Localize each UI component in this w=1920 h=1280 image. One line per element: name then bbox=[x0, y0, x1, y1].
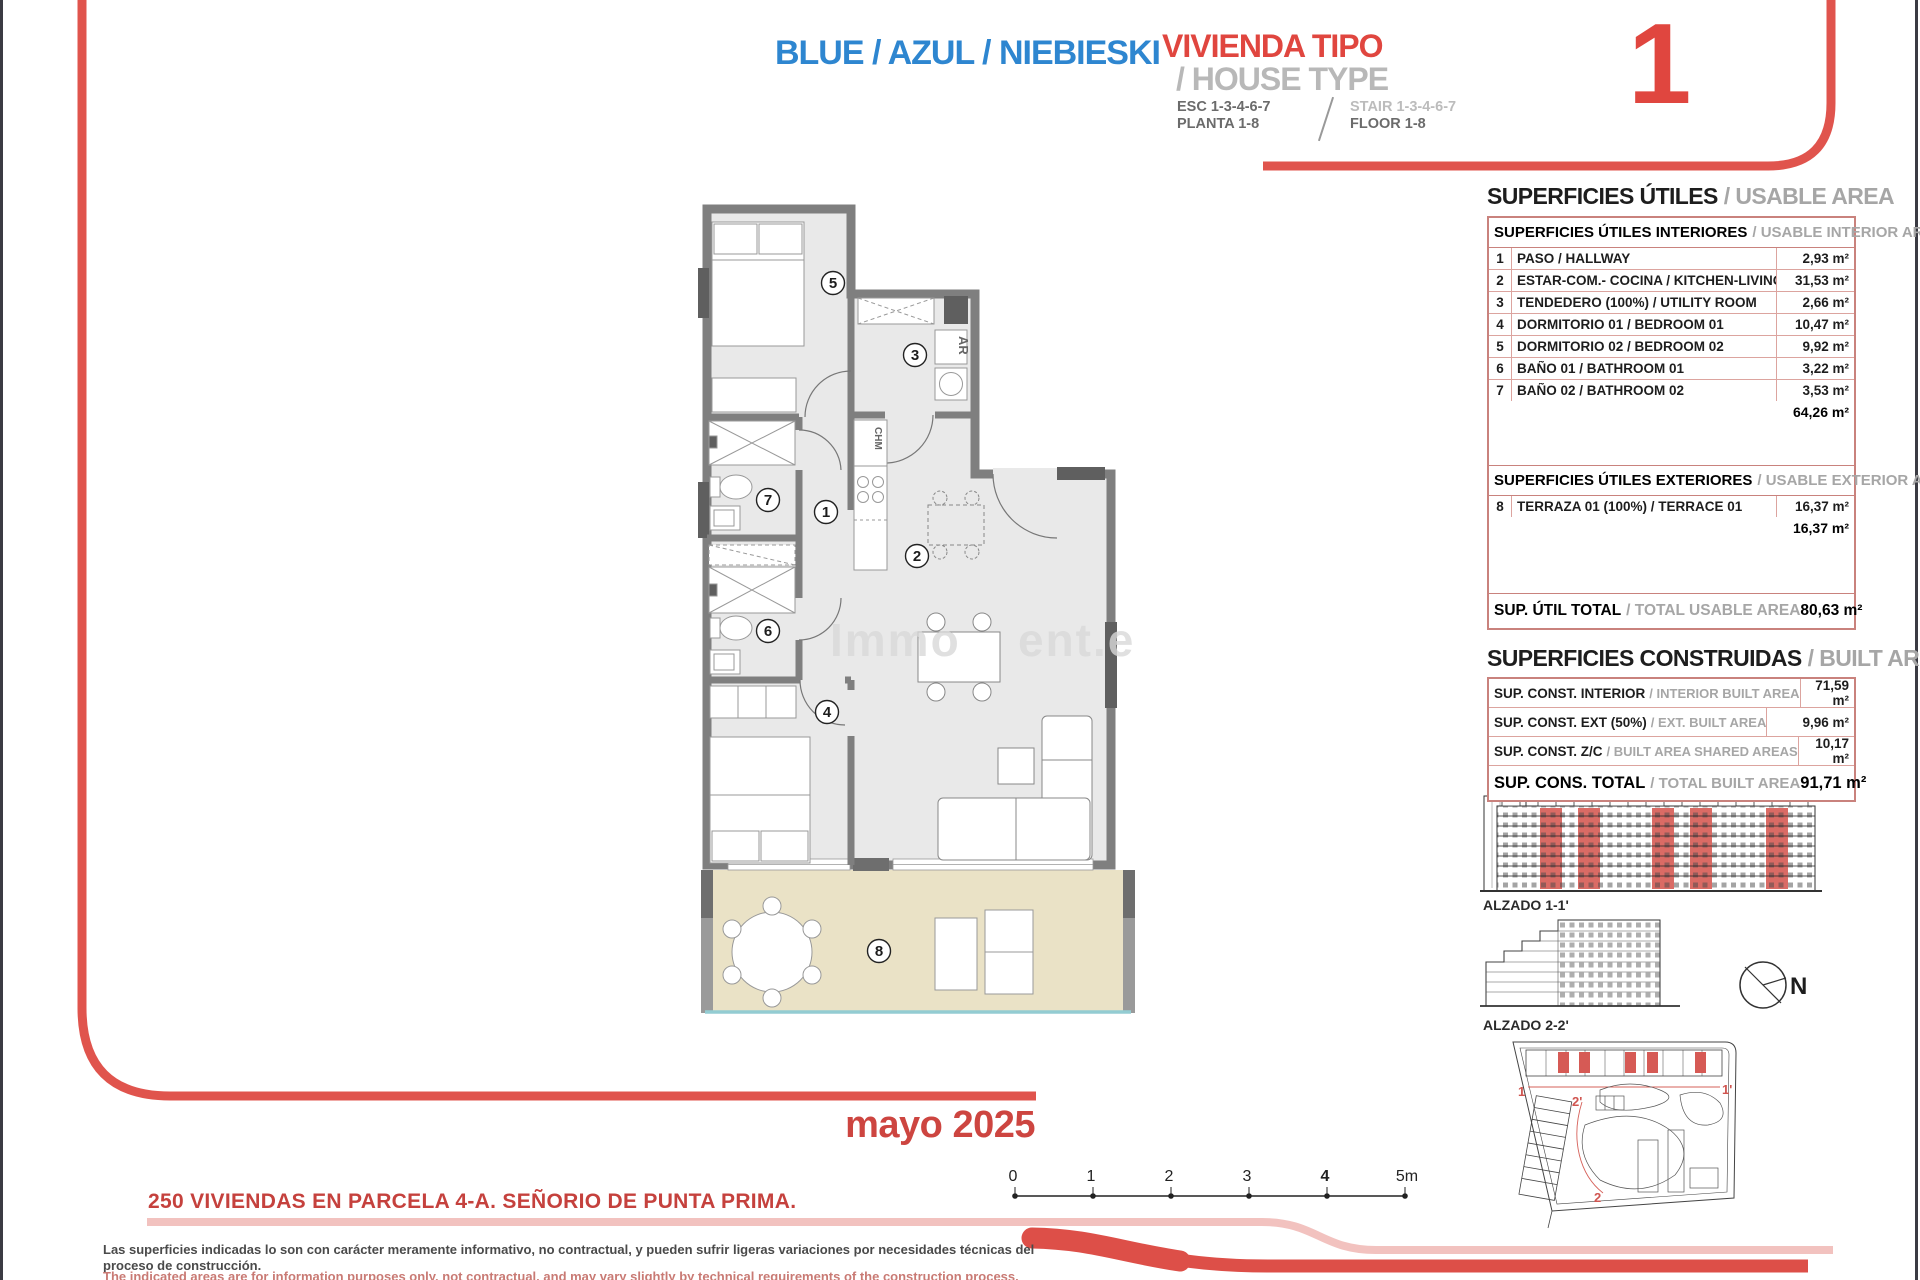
elevation-2-drawing: ALZADO 2-2' bbox=[1480, 920, 1680, 1033]
disclaimer-en: The indicated areas are for information … bbox=[103, 1269, 1303, 1280]
date-label: mayo 2025 bbox=[835, 1104, 1035, 1147]
row-value: 71,59 m² bbox=[1800, 679, 1855, 707]
table-row: 2ESTAR-COM.- COCINA / KITCHEN-LIVING31,5… bbox=[1489, 270, 1854, 292]
floor-plan-drawing: AR CHM 1 2 3 4 5 6 7 8 bbox=[698, 209, 1135, 1013]
elevation-1-label: ALZADO 1-1' bbox=[1483, 897, 1569, 913]
table-row: 6BAÑO 01 / BATHROOM 013,22 m² bbox=[1489, 358, 1854, 380]
interior-header-es: SUPERFICIES ÚTILES INTERIORES bbox=[1494, 224, 1747, 241]
row-num: 3 bbox=[1489, 292, 1512, 313]
table-row: SUP. CONST. Z/C/ BUILT AREA SHARED AREAS… bbox=[1489, 737, 1854, 766]
row-value: 10,47 m² bbox=[1776, 314, 1854, 335]
built-area-table: SUP. CONST. INTERIOR/ INTERIOR BUILT ARE… bbox=[1487, 677, 1856, 802]
table-spacer bbox=[1489, 539, 1854, 593]
row-num: 5 bbox=[1489, 336, 1512, 357]
row-value: 9,92 m² bbox=[1776, 336, 1854, 357]
house-type-number: 1 bbox=[1628, 8, 1691, 122]
row-label: TENDEDERO (100%) / UTILITY ROOM bbox=[1512, 295, 1776, 310]
room-label-8: 8 bbox=[875, 943, 883, 960]
usable-area-table: SUPERFICIES ÚTILES INTERIORES/ USABLE IN… bbox=[1487, 216, 1856, 630]
exterior-header-es: SUPERFICIES ÚTILES EXTERIORES bbox=[1494, 472, 1752, 489]
exterior-area-header: SUPERFICIES ÚTILES EXTERIORES/ USABLE EX… bbox=[1489, 465, 1854, 496]
row-num: 7 bbox=[1489, 380, 1512, 401]
exterior-header-en: / USABLE EXTERIOR AREA bbox=[1757, 472, 1920, 489]
usable-area-title: SUPERFICIES ÚTILES/ USABLE AREA bbox=[1487, 183, 1894, 210]
row-label-en: / EXT. BUILT AREA bbox=[1651, 715, 1767, 730]
row-label-es: SUP. CONST. Z/C bbox=[1494, 744, 1603, 759]
site-plan-markers: 1 1' 2' 2 bbox=[1518, 1082, 1732, 1205]
room-label-6: 6 bbox=[764, 623, 772, 640]
table-row: SUP. CONST. EXT (50%)/ EXT. BUILT AREA9,… bbox=[1489, 708, 1854, 737]
row-label: PASO / HALLWAY bbox=[1512, 251, 1776, 266]
built-area-title: SUPERFICIES CONSTRUIDAS/ BUILT AREA bbox=[1487, 645, 1920, 672]
marker-1-prime: 1' bbox=[1722, 1082, 1732, 1097]
marker-1: 1 bbox=[1518, 1084, 1525, 1099]
room-label-5: 5 bbox=[829, 275, 837, 292]
built-total-row: SUP. CONS. TOTAL/ TOTAL BUILT AREA 91,71… bbox=[1489, 766, 1854, 800]
row-label-es: SUP. CONST. INTERIOR bbox=[1494, 686, 1645, 701]
row-value: 16,37 m² bbox=[1776, 496, 1854, 517]
scale-tick-1: 1 bbox=[1087, 1168, 1096, 1185]
row-value: 2,66 m² bbox=[1776, 292, 1854, 313]
elevation-2-label: ALZADO 2-2' bbox=[1483, 1017, 1569, 1033]
color-title: BLUE / AZUL / NIEBIESKI bbox=[740, 34, 1160, 73]
scale-tick-3: 3 bbox=[1243, 1168, 1252, 1185]
built-total-label-en: / TOTAL BUILT AREA bbox=[1650, 775, 1800, 792]
row-value: 31,53 m² bbox=[1776, 270, 1854, 291]
usable-total-row: SUP. ÚTIL TOTAL/ TOTAL USABLE AREA 80,63… bbox=[1489, 593, 1854, 628]
row-value: 2,93 m² bbox=[1776, 248, 1854, 269]
scale-tick-2: 2 bbox=[1165, 1168, 1174, 1185]
usable-total-label-es: SUP. ÚTIL TOTAL bbox=[1494, 602, 1621, 620]
room-label-1: 1 bbox=[822, 504, 830, 521]
planta-label: PLANTA 1-8 bbox=[1177, 116, 1270, 133]
interior-subtotal: 64,26 m² bbox=[1489, 401, 1854, 423]
table-row: 8TERRAZA 01 (100%) / TERRACE 0116,37 m² bbox=[1489, 496, 1854, 517]
usable-total-value: 80,63 m² bbox=[1800, 602, 1862, 620]
stair-floor-info-en: STAIR 1-3-4-6-7 FLOOR 1-8 bbox=[1350, 99, 1456, 133]
built-area-title-en: / BUILT AREA bbox=[1808, 645, 1920, 671]
usable-total-label-en: / TOTAL USABLE AREA bbox=[1626, 602, 1800, 620]
row-label: TERRAZA 01 (100%) / TERRACE 01 bbox=[1512, 499, 1776, 514]
table-row: 5DORMITORIO 02 / BEDROOM 029,92 m² bbox=[1489, 336, 1854, 358]
row-label-es: SUP. CONST. EXT (50%) bbox=[1494, 715, 1647, 730]
table-row: SUP. CONST. INTERIOR/ INTERIOR BUILT ARE… bbox=[1489, 679, 1854, 708]
built-total-value: 91,71 m² bbox=[1800, 774, 1866, 793]
row-label-en: / INTERIOR BUILT AREA bbox=[1649, 686, 1799, 701]
page-edge-right bbox=[1915, 0, 1918, 1280]
scale-tick-0: 0 bbox=[1009, 1168, 1018, 1185]
row-value: 10,17 m² bbox=[1798, 737, 1854, 765]
table-row: 1PASO / HALLWAY2,93 m² bbox=[1489, 248, 1854, 270]
built-area-title-es: SUPERFICIES CONSTRUIDAS bbox=[1487, 645, 1802, 671]
row-num: 2 bbox=[1489, 270, 1512, 291]
watermark-right: ent.e bbox=[1018, 614, 1135, 666]
watermark-left: Immo bbox=[830, 614, 961, 666]
scale-bar: 0 1 2 3 4 5m bbox=[1009, 1168, 1419, 1199]
table-row: 7BAÑO 02 / BATHROOM 023,53 m² bbox=[1489, 380, 1854, 401]
table-row: 3TENDEDERO (100%) / UTILITY ROOM2,66 m² bbox=[1489, 292, 1854, 314]
row-value: 9,96 m² bbox=[1766, 708, 1854, 736]
highlighted-units-siteplan bbox=[1558, 1052, 1706, 1073]
appliance-label-chm: CHM bbox=[872, 427, 883, 450]
floor-plan-sheet: AR CHM 1 2 3 4 5 6 7 8 bbox=[0, 0, 1920, 1280]
scale-tick-5: 5m bbox=[1396, 1168, 1418, 1185]
usable-area-title-en: / USABLE AREA bbox=[1724, 183, 1894, 209]
room-label-4: 4 bbox=[823, 704, 832, 721]
table-row: 4DORMITORIO 01 / BEDROOM 0110,47 m² bbox=[1489, 314, 1854, 336]
built-total-label-es: SUP. CONS. TOTAL bbox=[1494, 774, 1645, 793]
scale-tick-4: 4 bbox=[1321, 1168, 1330, 1185]
row-label: DORMITORIO 01 / BEDROOM 01 bbox=[1512, 317, 1776, 332]
row-label: DORMITORIO 02 / BEDROOM 02 bbox=[1512, 339, 1776, 354]
row-label: BAÑO 02 / BATHROOM 02 bbox=[1512, 383, 1776, 398]
row-num: 1 bbox=[1489, 248, 1512, 269]
row-num: 8 bbox=[1489, 496, 1512, 517]
floor-label: FLOOR 1-8 bbox=[1350, 116, 1456, 133]
esc-label: ESC 1-3-4-6-7 bbox=[1177, 99, 1270, 116]
stair-label: STAIR 1-3-4-6-7 bbox=[1350, 99, 1456, 116]
exterior-subtotal: 16,37 m² bbox=[1489, 517, 1854, 539]
site-plan-drawing: 1 1' 2' 2 bbox=[1513, 1042, 1736, 1228]
row-num: 6 bbox=[1489, 358, 1512, 379]
interior-area-header: SUPERFICIES ÚTILES INTERIORES/ USABLE IN… bbox=[1489, 218, 1854, 248]
compass: N bbox=[1740, 962, 1807, 1008]
house-type-title-es: VIVIENDA TIPO bbox=[1162, 28, 1383, 65]
elevation-1-drawing: ALZADO 1-1' bbox=[1480, 796, 1822, 913]
row-label-en: / BUILT AREA SHARED AREAS bbox=[1607, 744, 1798, 759]
room-label-3: 3 bbox=[911, 347, 919, 364]
marker-2-prime: 2' bbox=[1572, 1094, 1582, 1109]
usable-area-title-es: SUPERFICIES ÚTILES bbox=[1487, 183, 1718, 209]
row-num: 4 bbox=[1489, 314, 1512, 335]
compass-north-label: N bbox=[1790, 973, 1807, 1000]
interior-header-en: / USABLE INTERIOR AREA bbox=[1752, 224, 1920, 241]
row-value: 3,53 m² bbox=[1776, 380, 1854, 401]
project-title: 250 VIVIENDAS EN PARCELA 4-A. SEÑORIO DE… bbox=[148, 1190, 796, 1214]
appliance-label-ar: AR bbox=[956, 336, 971, 355]
table-spacer bbox=[1489, 423, 1854, 465]
marker-2: 2 bbox=[1594, 1190, 1601, 1205]
row-label: ESTAR-COM.- COCINA / KITCHEN-LIVING bbox=[1512, 273, 1776, 288]
stair-floor-info-es: ESC 1-3-4-6-7 PLANTA 1-8 bbox=[1177, 99, 1270, 133]
room-label-7: 7 bbox=[764, 492, 772, 509]
page-edge-left bbox=[0, 0, 3, 1280]
room-label-2: 2 bbox=[913, 548, 921, 565]
house-type-title-en: / HOUSE TYPE bbox=[1176, 61, 1388, 98]
row-value: 3,22 m² bbox=[1776, 358, 1854, 379]
row-label: BAÑO 01 / BATHROOM 01 bbox=[1512, 361, 1776, 376]
